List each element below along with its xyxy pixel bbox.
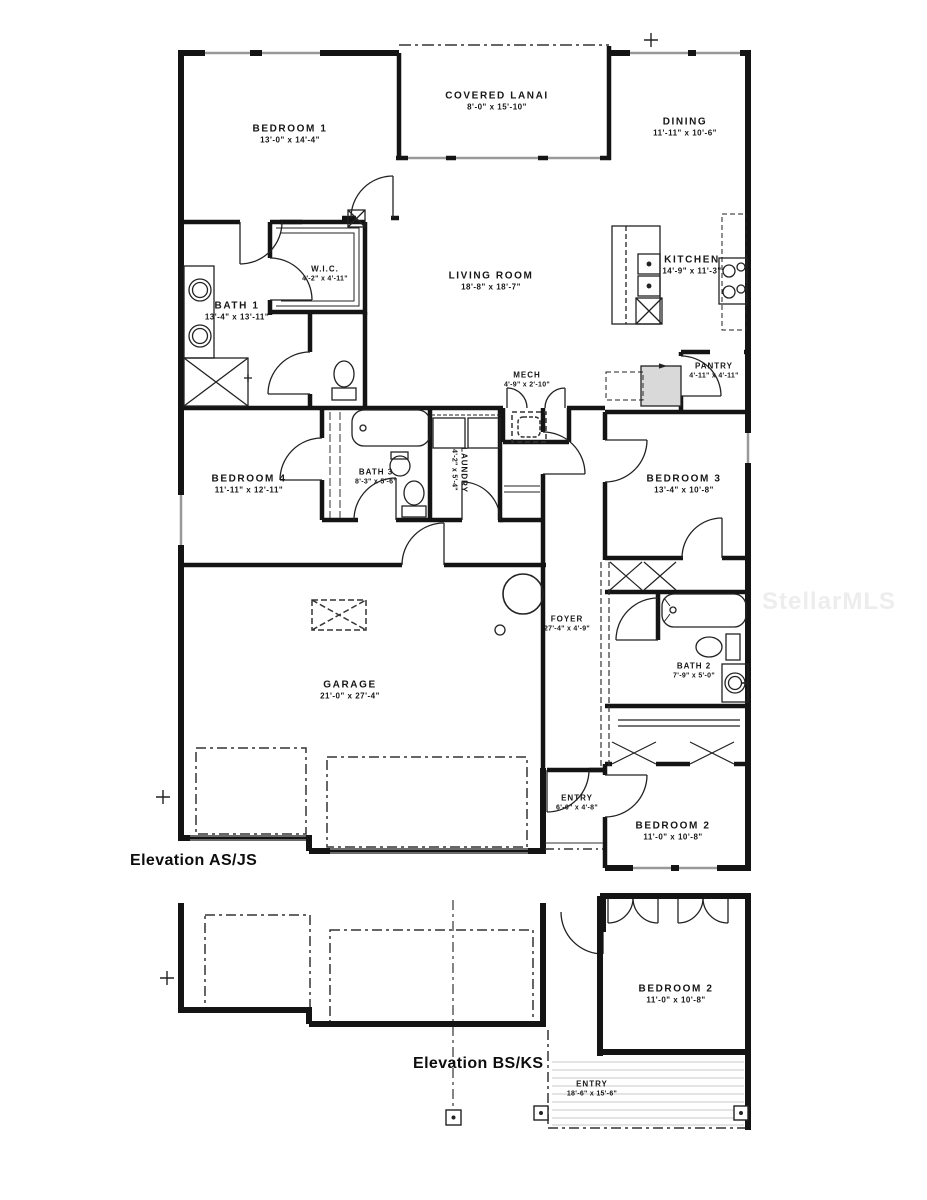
tub-bath3 bbox=[352, 410, 430, 446]
room-label-alt-entry: ENTRY 18'-6" x 15'-6" bbox=[567, 1079, 617, 1098]
room-dims: 4'-11" x 4'-11" bbox=[689, 372, 739, 381]
room-name: BEDROOM 2 bbox=[636, 819, 711, 832]
vanity-sink-bath2 bbox=[722, 664, 748, 702]
toilet-bath1 bbox=[332, 361, 356, 400]
room-dims: 21'-0" x 27'-4" bbox=[320, 691, 380, 701]
room-label-bedroom3: BEDROOM 3 13'-4" x 10'-8" bbox=[647, 472, 722, 495]
room-dims: 8'-0" x 15'-10" bbox=[445, 102, 549, 112]
room-label-bath3: BATH 3 8'-3" x 5'-6" bbox=[355, 467, 397, 486]
room-name: BATH 2 bbox=[673, 661, 715, 671]
room-name: ENTRY bbox=[556, 793, 598, 803]
room-name: DINING bbox=[653, 115, 717, 128]
room-name: BEDROOM 2 bbox=[639, 982, 714, 995]
room-dims: 7'-9" x 5'-0" bbox=[673, 672, 715, 681]
room-label-pantry: PANTRY 4'-11" x 4'-11" bbox=[689, 361, 739, 380]
alt-elevation-walls bbox=[181, 896, 751, 1130]
tub-bath2 bbox=[662, 594, 746, 627]
shower-bath1 bbox=[184, 358, 252, 406]
room-dims: 18'-8" x 18'-7" bbox=[449, 282, 534, 292]
room-dims: 6'-0" x 4'-8" bbox=[556, 804, 598, 813]
room-name: LAUNDRY bbox=[458, 447, 468, 493]
room-dims: 13'-4" x 13'-11" bbox=[205, 312, 269, 322]
windows bbox=[181, 53, 748, 1052]
room-name: COVERED LANAI bbox=[445, 89, 549, 102]
room-name: KITCHEN bbox=[662, 253, 721, 266]
toilet-bath3 bbox=[402, 481, 426, 517]
room-label-bedroom4: BEDROOM 4 11'-11" x 12'-11" bbox=[212, 472, 287, 495]
room-label-bedroom2: BEDROOM 2 11'-0" x 10'-8" bbox=[636, 819, 711, 842]
room-name: FOYER bbox=[544, 614, 590, 624]
room-name: MECH bbox=[504, 370, 550, 380]
refrigerator bbox=[641, 364, 681, 406]
room-dims: 27'-4" x 4'-9" bbox=[544, 625, 590, 634]
room-name: PANTRY bbox=[689, 361, 739, 371]
room-label-bath2: BATH 2 7'-9" x 5'-0" bbox=[673, 661, 715, 680]
room-dims: 11'-0" x 10'-8" bbox=[636, 832, 711, 842]
room-name: W.I.C. bbox=[302, 264, 348, 274]
room-name: LIVING ROOM bbox=[449, 269, 534, 282]
room-dims: 11'-11" x 10'-6" bbox=[653, 128, 717, 138]
water-heater-garage bbox=[495, 574, 543, 635]
stellar-mls-watermark: StellarMLS bbox=[762, 588, 896, 616]
room-label-entry: ENTRY 6'-0" x 4'-8" bbox=[556, 793, 598, 812]
room-name: BEDROOM 1 bbox=[253, 122, 328, 135]
room-dims: 11'-11" x 12'-11" bbox=[212, 485, 287, 495]
room-label-bath1: BATH 1 13'-4" x 13'-11" bbox=[205, 299, 269, 322]
room-label-foyer: FOYER 27'-4" x 4'-9" bbox=[544, 614, 590, 633]
room-label-living: LIVING ROOM 18'-8" x 18'-7" bbox=[449, 269, 534, 292]
room-label-alt-bedroom2: BEDROOM 2 11'-0" x 10'-8" bbox=[639, 982, 714, 1005]
room-label-wic: W.I.C. 4'-2" x 4'-11" bbox=[302, 264, 348, 283]
room-label-lanai: COVERED LANAI 8'-0" x 15'-10" bbox=[445, 89, 549, 112]
room-dims: 4'-9" x 2'-10" bbox=[504, 381, 550, 390]
dashed-lines bbox=[196, 45, 748, 1128]
pantry-counter bbox=[606, 372, 643, 400]
room-name: BATH 1 bbox=[205, 299, 269, 312]
survey-marks bbox=[156, 33, 658, 985]
elevation-label-as-js: Elevation AS/JS bbox=[130, 852, 257, 870]
room-label-bedroom1: BEDROOM 1 13'-0" x 14'-4" bbox=[253, 122, 328, 145]
room-label-dining: DINING 11'-11" x 10'-6" bbox=[653, 115, 717, 138]
room-dims: 13'-4" x 10'-8" bbox=[647, 485, 722, 495]
room-dims: 4'-2" x 5'-4" bbox=[449, 447, 458, 493]
washer-dryer bbox=[431, 415, 502, 448]
toilet-bath2 bbox=[696, 634, 740, 660]
room-dims: 13'-0" x 14'-4" bbox=[253, 135, 328, 145]
room-dims: 11'-0" x 10'-8" bbox=[639, 995, 714, 1005]
room-dims: 4'-2" x 4'-11" bbox=[302, 275, 348, 284]
room-dims: 14'-9" x 11'-3" bbox=[662, 266, 721, 276]
room-label-laundry: LAUNDRY 4'-2" x 5'-4" bbox=[449, 447, 468, 493]
room-dims: 18'-6" x 15'-6" bbox=[567, 1090, 617, 1099]
room-name: BEDROOM 3 bbox=[647, 472, 722, 485]
room-label-kitchen: KITCHEN 14'-9" x 11'-3" bbox=[662, 253, 721, 276]
room-name: ENTRY bbox=[567, 1079, 617, 1089]
floorplan-page: BEDROOM 1 13'-0" x 14'-4" COVERED LANAI … bbox=[0, 0, 927, 1200]
room-dims: 8'-3" x 5'-6" bbox=[355, 478, 397, 487]
room-name: BATH 3 bbox=[355, 467, 397, 477]
elevation-label-bs-ks: Elevation BS/KS bbox=[413, 1055, 543, 1073]
hall-closet-shelf bbox=[504, 486, 540, 492]
room-label-mech: MECH 4'-9" x 2'-10" bbox=[504, 370, 550, 389]
room-name: BEDROOM 4 bbox=[212, 472, 287, 485]
room-name: GARAGE bbox=[320, 678, 380, 691]
room-label-garage: GARAGE 21'-0" x 27'-4" bbox=[320, 678, 380, 701]
kitchen-counter-cooktop bbox=[719, 214, 747, 330]
kitchen-island bbox=[612, 226, 662, 324]
